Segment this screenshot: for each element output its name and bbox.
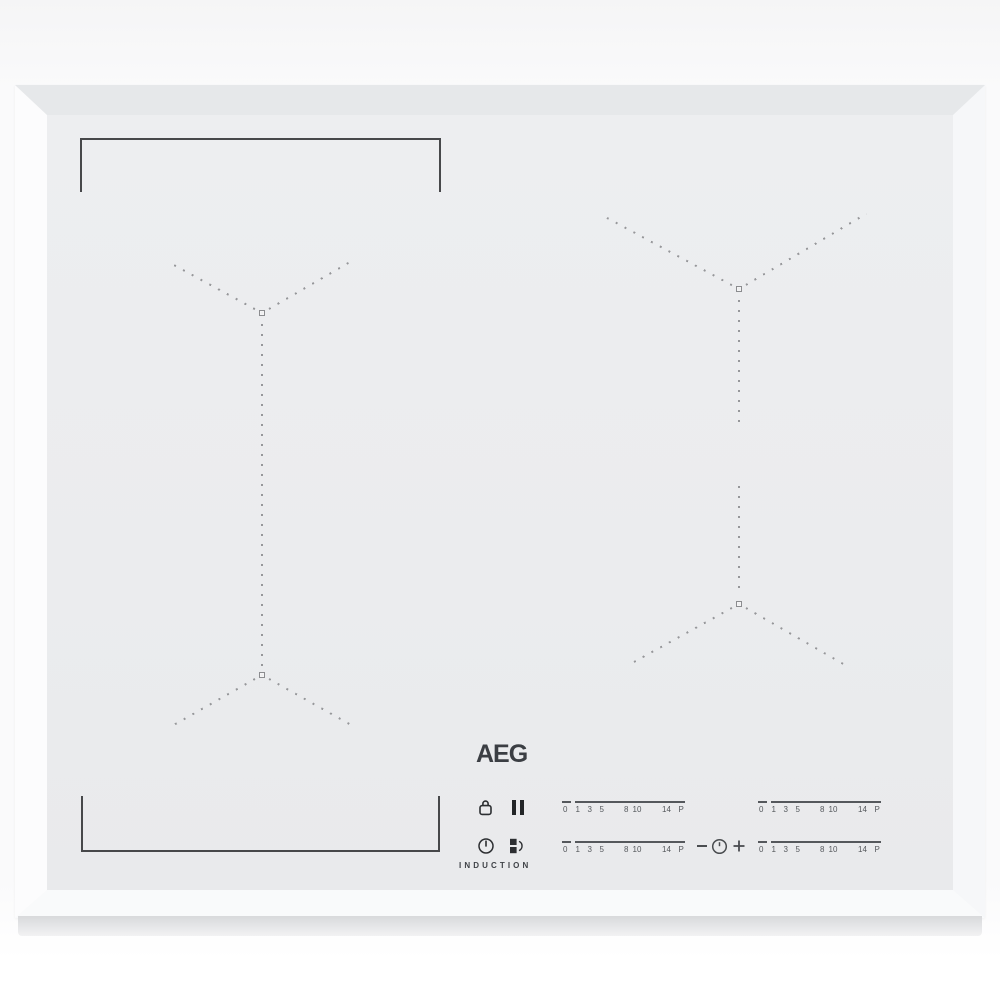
flexizone-bracket-bottom [81, 796, 440, 852]
slider-track [771, 801, 881, 803]
power-slider-left-rear: 0 1 3 5 8 10 14 P [562, 799, 686, 815]
slider-scale-label: 5 [600, 806, 604, 814]
slider-scale-label: 3 [784, 846, 788, 854]
timer-minus-button [697, 845, 707, 847]
hob-front-edge [18, 916, 982, 936]
slider-track-zero [562, 841, 571, 843]
timer-plus-button [732, 839, 746, 853]
zone-dotted-line-right-front [738, 478, 740, 596]
power-icon [477, 837, 495, 855]
slider-scale-label: 10 [829, 846, 838, 854]
slider-track [771, 841, 881, 843]
product-photo: AEG INDUCTION 0 1 3 5 8 10 14 P [0, 0, 1000, 1000]
slider-scale-label: 0 [759, 846, 763, 854]
power-slider-left-front: 0 1 3 5 8 10 14 P [562, 839, 686, 855]
induction-hob [15, 85, 985, 918]
induction-label: INDUCTION [459, 861, 531, 870]
pause-icon [512, 800, 524, 815]
slider-scale-label: 1 [772, 846, 776, 854]
power-slider-right-rear: 0 1 3 5 8 10 14 P [758, 799, 882, 815]
slider-track-zero [562, 801, 571, 803]
slider-scale-label: 8 [624, 806, 628, 814]
slider-scale-label: P [679, 846, 684, 854]
slider-scale-label: 0 [563, 806, 567, 814]
slider-scale-label: 14 [662, 846, 671, 854]
slider-scale-label: P [875, 846, 880, 854]
zone-dotted-line-right-rear [738, 292, 740, 430]
slider-scale-label: 14 [858, 806, 867, 814]
slider-track [575, 841, 685, 843]
slider-track-zero [758, 801, 767, 803]
slider-scale-label: 1 [772, 806, 776, 814]
slider-scale-label: 8 [820, 846, 824, 854]
slider-scale-label: 8 [820, 806, 824, 814]
slider-scale-label: 5 [796, 806, 800, 814]
slider-scale-label: 0 [759, 806, 763, 814]
slider-track [575, 801, 685, 803]
slider-scale-label: 14 [858, 846, 867, 854]
power-slider-right-front: 0 1 3 5 8 10 14 P [758, 839, 882, 855]
bridge-icon [509, 838, 525, 854]
slider-scale-label: 10 [633, 806, 642, 814]
brand-logo: AEG [476, 740, 527, 769]
slider-scale-label: 3 [588, 806, 592, 814]
lock-icon [478, 799, 493, 816]
flexizone-bracket-top [80, 138, 441, 192]
slider-scale-label: 1 [576, 806, 580, 814]
slider-scale-label: P [875, 806, 880, 814]
slider-scale-label: 10 [633, 846, 642, 854]
slider-scale-label: 1 [576, 846, 580, 854]
slider-track-zero [758, 841, 767, 843]
slider-scale-label: 3 [588, 846, 592, 854]
slider-scale-label: 8 [624, 846, 628, 854]
slider-scale-label: 10 [829, 806, 838, 814]
timer-clock-icon [711, 838, 728, 855]
slider-scale-label: 0 [563, 846, 567, 854]
slider-scale-label: 14 [662, 806, 671, 814]
slider-scale-label: 3 [784, 806, 788, 814]
slider-scale-label: P [679, 806, 684, 814]
slider-scale-label: 5 [796, 846, 800, 854]
zone-dotted-line-left [261, 316, 263, 668]
slider-scale-label: 5 [600, 846, 604, 854]
